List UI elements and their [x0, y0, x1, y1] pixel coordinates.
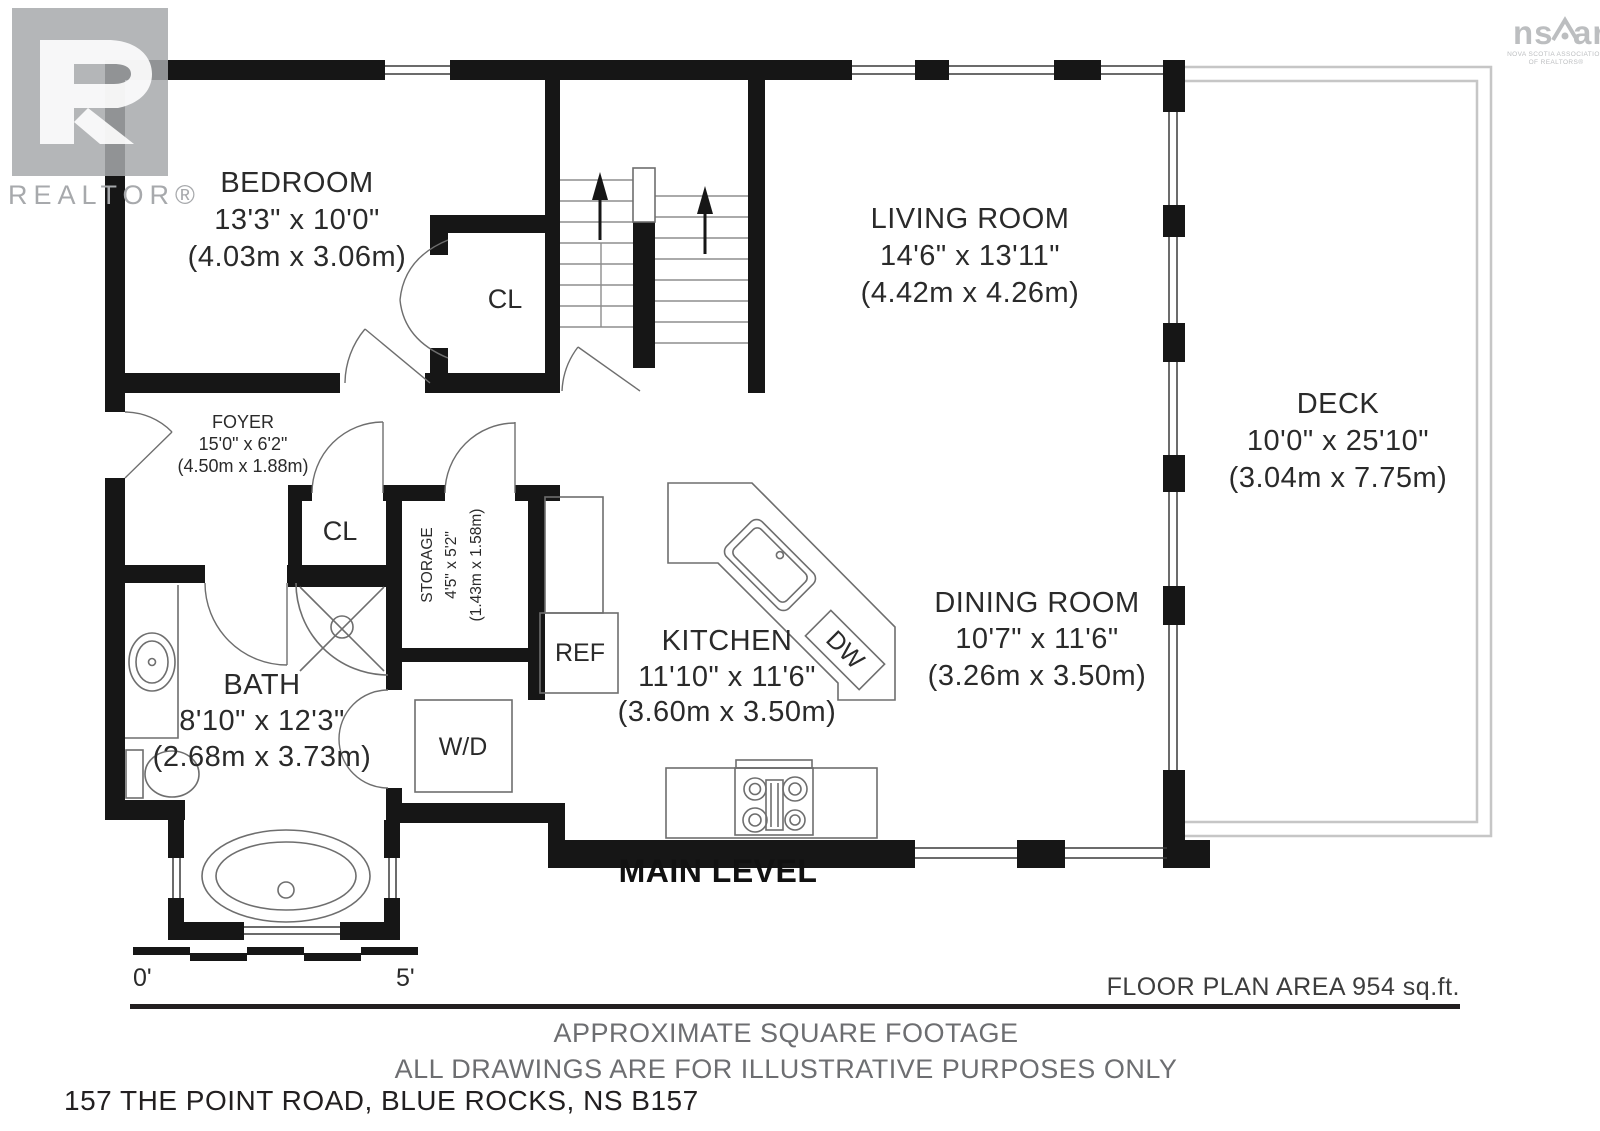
bedroom-door [345, 329, 430, 383]
living-imperial: 14'6" x 13'11" [880, 240, 1060, 272]
dining-room-label: DINING ROOM 10'7" x 11'6" (3.26m x 3.50m… [928, 587, 1147, 692]
kitchen-name: KITCHEN [662, 625, 793, 657]
bedroom-metric: (4.03m x 3.06m) [188, 241, 407, 273]
living-name: LIVING ROOM [871, 203, 1070, 235]
bedroom-name: BEDROOM [220, 167, 373, 199]
bedroom-closet-label: CL [488, 284, 523, 314]
dining-metric: (3.26m x 3.50m) [928, 660, 1147, 692]
nsar-subtext-1: NOVA SCOTIA ASSOCIATION [1507, 51, 1600, 58]
bath-name: BATH [223, 669, 300, 701]
window-right-3 [1169, 362, 1177, 455]
storage-name: STORAGE [419, 527, 436, 603]
foyer-metric: (4.50m x 1.88m) [177, 456, 308, 476]
foyer-imperial: 15'0" x 6'2" [199, 434, 288, 454]
bedroom-closet-bifold [400, 240, 448, 358]
storage-door [445, 422, 515, 493]
bath-label: BATH 8'10" x 12'3" (2.68m x 3.73m) [153, 669, 372, 773]
fridge-label: REF [555, 639, 605, 667]
bath-double-doors [339, 690, 388, 788]
floor-plan-page: BEDROOM 13'3" x 10'0" (4.03m x 3.06m) LI… [0, 0, 1600, 1131]
nsar-logo: ns ar NOVA SCOTIA ASSOCIATION OF REALTOR… [1507, 14, 1600, 66]
foyer-closet-label: CL [323, 516, 358, 546]
stove-icon [666, 760, 877, 838]
storage-label: STORAGE 4'5" x 5'2" (1.43m x 1.58m) [419, 509, 485, 622]
window-top-living-1 [852, 60, 915, 80]
bedroom-imperial: 13'3" x 10'0" [214, 204, 380, 236]
nsar-text-right: ar [1573, 14, 1600, 51]
footer-divider [130, 1004, 1460, 1009]
kitchen-counter-tall [545, 497, 603, 613]
scale-bar: 0' 5' [133, 947, 418, 992]
level-title: MAIN LEVEL [619, 853, 818, 889]
footer-note-2: ALL DRAWINGS ARE FOR ILLUSTRATIVE PURPOS… [395, 1054, 1178, 1084]
deck-imperial: 10'0" x 25'10" [1247, 425, 1429, 457]
bathtub-icon [202, 830, 370, 922]
window-top-bedroom [385, 60, 450, 80]
bath-imperial: 8'10" x 12'3" [179, 705, 345, 737]
window-bottom-1 [915, 848, 1017, 858]
scale-end-label: 5' [396, 964, 415, 992]
stair-up-arrow-left [592, 172, 608, 240]
window-tub-right [389, 858, 396, 898]
dining-imperial: 10'7" x 11'6" [955, 623, 1118, 655]
footer-note-1: APPROXIMATE SQUARE FOOTAGE [553, 1018, 1018, 1048]
realtor-logo: REALTOR® [8, 8, 201, 210]
foyer-name: FOYER [212, 412, 274, 432]
floor-plan-area: FLOOR PLAN AREA 954 sq.ft. [1107, 973, 1460, 1001]
nsar-text-left: ns [1513, 14, 1554, 51]
floor-plan-canvas: BEDROOM 13'3" x 10'0" (4.03m x 3.06m) LI… [0, 0, 1600, 1131]
window-top-living-3 [1101, 60, 1163, 80]
stair-door [562, 347, 640, 391]
window-right-4 [1169, 492, 1177, 586]
window-right-2 [1169, 237, 1177, 323]
shower-icon [296, 583, 388, 675]
foyer-label: FOYER 15'0" x 6'2" (4.50m x 1.88m) [177, 412, 308, 476]
deck-name: DECK [1297, 388, 1380, 420]
deck-label: DECK 10'0" x 25'10" (3.04m x 7.75m) [1229, 388, 1448, 494]
property-address: 157 THE POINT ROAD, BLUE ROCKS, NS B157 [64, 1085, 699, 1116]
window-tub-bottom [244, 927, 340, 934]
storage-metric: (1.43m x 1.58m) [468, 509, 485, 622]
washer-dryer-label: W/D [439, 733, 488, 761]
window-tub-left [173, 858, 180, 898]
kitchen-imperial: 11'10" x 11'6" [638, 661, 816, 693]
foyer-closet-door [312, 422, 383, 493]
bedroom-label: BEDROOM 13'3" x 10'0" (4.03m x 3.06m) [188, 167, 407, 273]
deck-door [1169, 625, 1177, 770]
window-right-1 [1169, 112, 1177, 205]
bath-metric: (2.68m x 3.73m) [153, 741, 372, 773]
window-top-living-2 [949, 60, 1054, 80]
scale-start-label: 0' [133, 964, 152, 992]
deck-metric: (3.04m x 7.75m) [1229, 462, 1448, 494]
stair-newel [633, 168, 655, 222]
window-bottom-2 [1065, 848, 1167, 858]
footer: FLOOR PLAN AREA 954 sq.ft. APPROXIMATE S… [64, 973, 1460, 1116]
nsar-subtext-2: OF REALTORS® [1529, 58, 1584, 66]
storage-imperial: 4'5" x 5'2" [443, 531, 460, 599]
living-room-label: LIVING ROOM 14'6" x 13'11" (4.42m x 4.26… [861, 203, 1080, 309]
bath-sink-icon [125, 585, 178, 738]
living-metric: (4.42m x 4.26m) [861, 277, 1080, 309]
dining-name: DINING ROOM [934, 587, 1139, 619]
realtor-wordmark: REALTOR® [8, 180, 201, 210]
bath-door [205, 583, 287, 665]
kitchen-metric: (3.60m x 3.50m) [618, 696, 837, 728]
entry-door [125, 412, 172, 478]
room-labels: BEDROOM 13'3" x 10'0" (4.03m x 3.06m) LI… [153, 167, 1448, 773]
